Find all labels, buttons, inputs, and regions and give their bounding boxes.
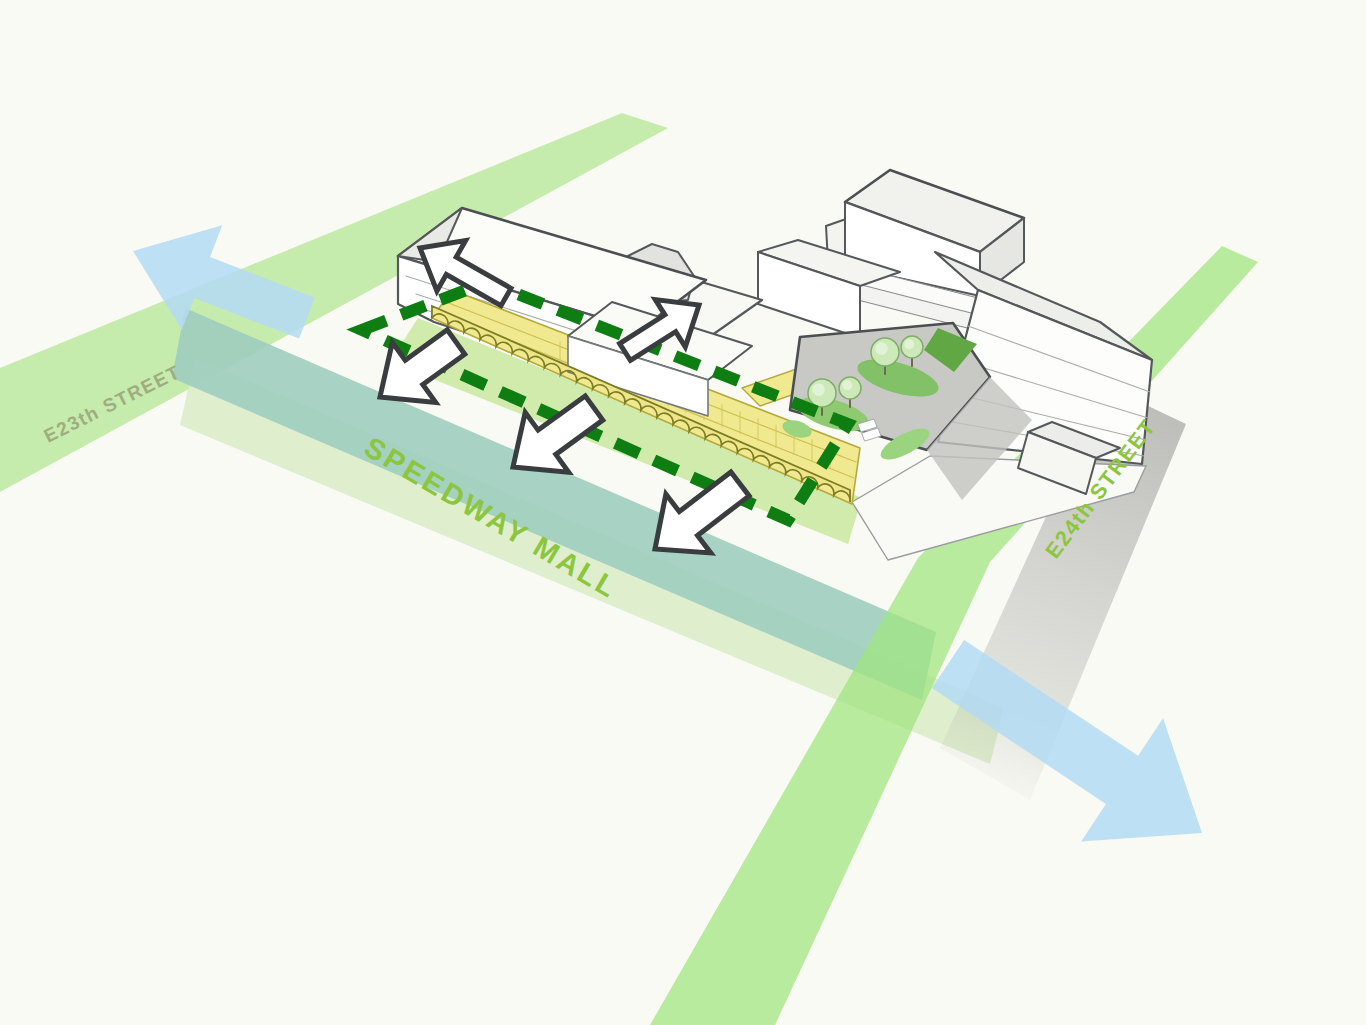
diagram-canvas: E23th STREET SPEEDWAY MALL E24th STREET xyxy=(0,0,1366,1025)
site-circulation-diagram: E23th STREET SPEEDWAY MALL E24th STREET xyxy=(0,0,1366,1025)
tree-canopy-highlight xyxy=(875,342,888,355)
tree-canopy-highlight xyxy=(904,339,914,349)
tree-canopy-highlight xyxy=(812,383,825,396)
tree-canopy-highlight xyxy=(842,380,852,390)
